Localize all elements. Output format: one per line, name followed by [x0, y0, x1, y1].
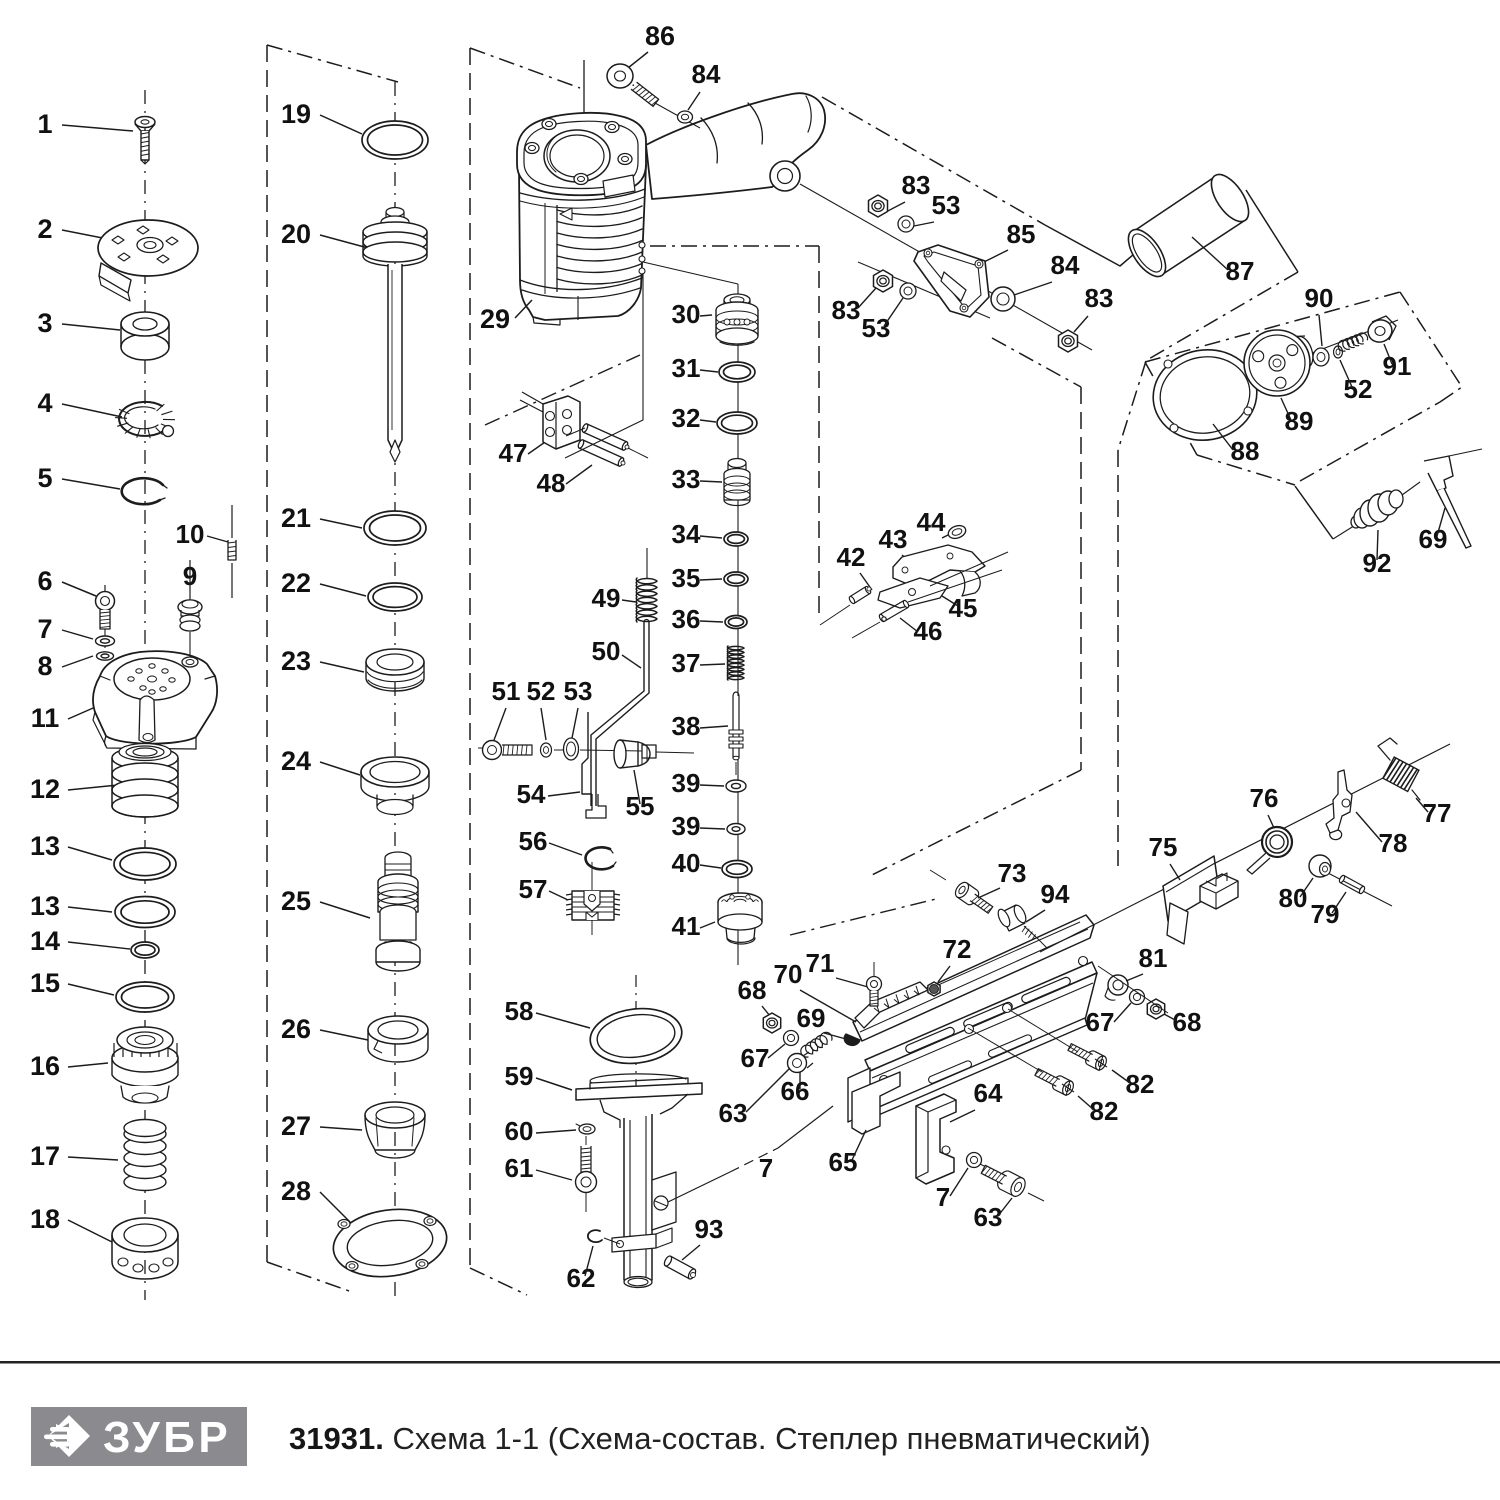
- svg-text:8: 8: [37, 651, 52, 681]
- svg-text:17: 17: [30, 1141, 60, 1171]
- svg-text:67: 67: [741, 1043, 770, 1073]
- svg-text:67: 67: [1086, 1007, 1115, 1037]
- svg-text:27: 27: [281, 1111, 311, 1141]
- svg-text:91: 91: [1383, 351, 1412, 381]
- svg-text:76: 76: [1250, 783, 1279, 813]
- svg-text:50: 50: [592, 636, 621, 666]
- svg-text:12: 12: [30, 774, 60, 804]
- svg-text:86: 86: [645, 21, 675, 51]
- svg-text:85: 85: [1007, 219, 1036, 249]
- svg-text:94: 94: [1041, 879, 1070, 909]
- svg-text:22: 22: [281, 568, 311, 598]
- svg-text:61: 61: [505, 1153, 534, 1183]
- svg-text:81: 81: [1139, 943, 1168, 973]
- svg-text:4: 4: [37, 388, 52, 418]
- svg-text:36: 36: [672, 604, 701, 634]
- svg-text:23: 23: [281, 646, 311, 676]
- svg-text:43: 43: [879, 524, 908, 554]
- svg-text:7: 7: [936, 1182, 950, 1212]
- svg-text:62: 62: [567, 1263, 596, 1293]
- svg-text:38: 38: [672, 711, 701, 741]
- svg-text:51: 51: [492, 676, 521, 706]
- svg-text:15: 15: [30, 968, 60, 998]
- svg-text:77: 77: [1423, 798, 1452, 828]
- svg-text:55: 55: [626, 791, 655, 821]
- svg-text:52: 52: [527, 676, 556, 706]
- svg-text:26: 26: [281, 1014, 311, 1044]
- svg-text:54: 54: [517, 779, 546, 809]
- svg-text:2: 2: [37, 214, 52, 244]
- svg-text:53: 53: [932, 190, 961, 220]
- svg-text:46: 46: [914, 616, 943, 646]
- svg-text:90: 90: [1305, 283, 1334, 313]
- svg-text:79: 79: [1311, 899, 1340, 929]
- svg-text:29: 29: [480, 304, 510, 334]
- svg-text:44: 44: [917, 507, 946, 537]
- svg-text:71: 71: [806, 948, 835, 978]
- svg-text:84: 84: [692, 59, 721, 89]
- svg-text:53: 53: [862, 313, 891, 343]
- svg-text:19: 19: [281, 99, 311, 129]
- svg-text:83: 83: [1085, 283, 1114, 313]
- svg-text:45: 45: [949, 593, 978, 623]
- svg-text:42: 42: [837, 542, 866, 572]
- svg-text:87: 87: [1226, 256, 1255, 286]
- svg-text:48: 48: [537, 468, 566, 498]
- svg-text:24: 24: [281, 746, 311, 776]
- svg-text:13: 13: [30, 831, 60, 861]
- svg-text:39: 39: [672, 811, 701, 841]
- svg-text:63: 63: [719, 1098, 748, 1128]
- svg-text:57: 57: [519, 874, 548, 904]
- svg-text:58: 58: [505, 996, 534, 1026]
- svg-text:34: 34: [672, 519, 701, 549]
- svg-text:ЗУБР: ЗУБР: [103, 1413, 231, 1462]
- svg-text:82: 82: [1090, 1096, 1119, 1126]
- svg-text:7: 7: [37, 614, 52, 644]
- svg-text:49: 49: [592, 583, 621, 613]
- svg-text:66: 66: [781, 1076, 810, 1106]
- svg-text:59: 59: [505, 1061, 534, 1091]
- svg-text:70: 70: [774, 959, 803, 989]
- svg-text:1: 1: [37, 109, 52, 139]
- svg-text:75: 75: [1149, 832, 1178, 862]
- svg-text:82: 82: [1126, 1069, 1155, 1099]
- svg-text:25: 25: [281, 886, 311, 916]
- svg-text:35: 35: [672, 563, 701, 593]
- svg-text:72: 72: [943, 934, 972, 964]
- svg-text:47: 47: [499, 438, 528, 468]
- svg-text:37: 37: [672, 648, 701, 678]
- svg-text:31931. Схема 1-1 (Схема-состав: 31931. Схема 1-1 (Схема-состав. Степлер …: [289, 1421, 1151, 1456]
- svg-text:20: 20: [281, 219, 311, 249]
- svg-text:18: 18: [30, 1204, 60, 1234]
- svg-text:88: 88: [1231, 436, 1260, 466]
- svg-text:41: 41: [672, 911, 701, 941]
- svg-text:30: 30: [672, 299, 701, 329]
- svg-text:64: 64: [974, 1078, 1003, 1108]
- svg-text:68: 68: [1173, 1007, 1202, 1037]
- svg-text:10: 10: [176, 519, 205, 549]
- svg-text:93: 93: [695, 1214, 724, 1244]
- svg-text:80: 80: [1279, 883, 1308, 913]
- svg-text:39: 39: [672, 768, 701, 798]
- svg-text:32: 32: [672, 403, 701, 433]
- svg-text:69: 69: [1419, 524, 1448, 554]
- svg-text:14: 14: [30, 926, 60, 956]
- svg-text:69: 69: [797, 1003, 826, 1033]
- svg-text:16: 16: [30, 1051, 60, 1081]
- svg-text:21: 21: [281, 503, 311, 533]
- svg-text:83: 83: [902, 170, 931, 200]
- svg-text:78: 78: [1379, 828, 1408, 858]
- svg-text:5: 5: [37, 463, 52, 493]
- svg-text:53: 53: [564, 676, 593, 706]
- svg-text:63: 63: [974, 1202, 1003, 1232]
- svg-text:89: 89: [1285, 406, 1314, 436]
- svg-text:56: 56: [519, 826, 548, 856]
- svg-text:84: 84: [1051, 250, 1080, 280]
- svg-text:6: 6: [37, 566, 52, 596]
- svg-text:68: 68: [738, 975, 767, 1005]
- svg-text:7: 7: [759, 1153, 773, 1183]
- svg-text:3: 3: [37, 308, 52, 338]
- svg-text:13: 13: [30, 891, 60, 921]
- svg-text:60: 60: [505, 1116, 534, 1146]
- svg-text:73: 73: [998, 858, 1027, 888]
- svg-text:83: 83: [832, 295, 861, 325]
- svg-text:40: 40: [672, 848, 701, 878]
- svg-text:33: 33: [672, 464, 701, 494]
- svg-text:65: 65: [829, 1147, 858, 1177]
- svg-text:31: 31: [672, 353, 701, 383]
- svg-text:28: 28: [281, 1176, 311, 1206]
- svg-text:11: 11: [31, 703, 60, 733]
